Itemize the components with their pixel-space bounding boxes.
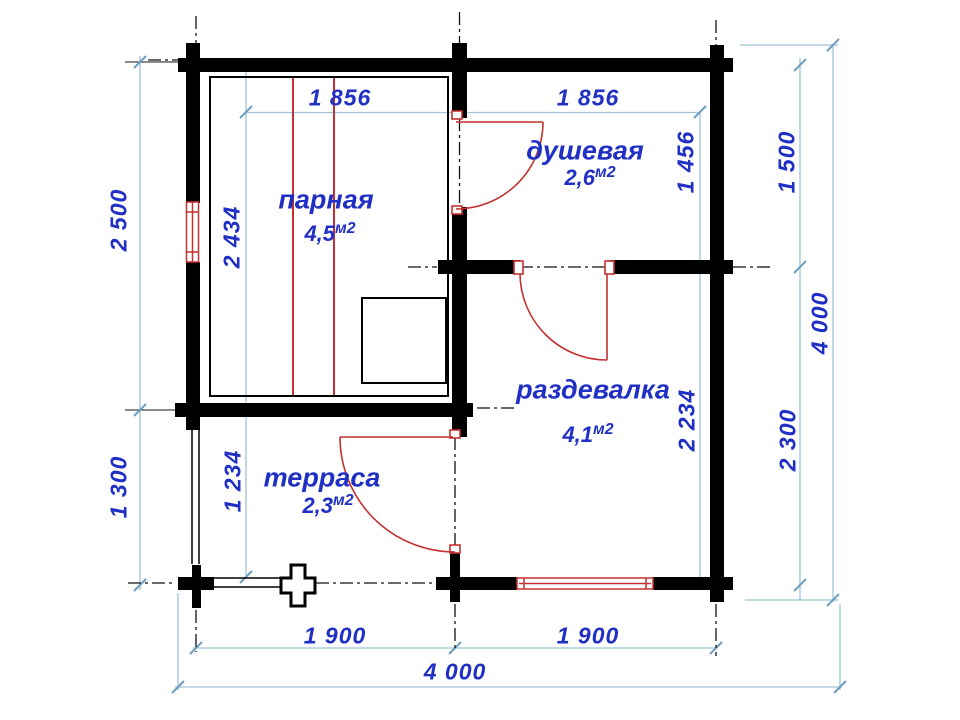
dim-bottom-left: 1 900 <box>304 625 367 648</box>
room-area-dushevaya: 2,6м2 <box>564 165 615 189</box>
center-wall-mid <box>452 207 467 437</box>
room-label-terrasa: терраса <box>264 465 381 492</box>
right-wall <box>710 45 724 602</box>
dim-right-lower: 2 300 <box>777 409 800 472</box>
dim-left-lower: 1 300 <box>108 456 131 519</box>
dim-parnaya-inner: 2 434 <box>221 206 244 269</box>
bottom-center-stub <box>450 552 460 602</box>
room-area-terrasa: 2,3м2 <box>302 493 353 517</box>
left-window <box>187 202 199 262</box>
dim-terrace-inner: 1 234 <box>222 450 245 513</box>
bottom-wall-right <box>653 577 733 590</box>
left-wall-upper <box>186 43 200 203</box>
dim-bottom-right: 1 900 <box>557 625 620 648</box>
terrace-corner-column-v <box>192 565 201 608</box>
stove <box>362 298 446 383</box>
extension-stubs <box>125 62 180 410</box>
dim-shower-inner: 1 456 <box>675 131 698 194</box>
room-area-razdevalka: 4,1м2 <box>562 422 613 446</box>
bottom-wall-left <box>436 577 517 590</box>
dim-top-right: 1 856 <box>557 87 620 110</box>
floor-plan: 1 856 1 856 2 500 1 300 2 434 1 234 1 45… <box>0 0 960 720</box>
dimension-ticks <box>134 39 846 693</box>
room-label-razdevalka: раздевалка <box>516 377 670 404</box>
dim-left-upper: 2 500 <box>108 189 131 252</box>
walls <box>175 43 733 608</box>
bottom-window <box>517 578 653 589</box>
dim-changing-inner: 2 234 <box>676 389 699 452</box>
room-label-parnaya: парная <box>278 187 373 214</box>
center-wall-upper <box>452 43 467 118</box>
plan-drawing <box>0 0 960 720</box>
changing-room-door <box>514 261 614 360</box>
room-area-parnaya: 4,5м2 <box>304 221 355 245</box>
dim-right-total: 4 000 <box>809 292 832 355</box>
dim-top-left: 1 856 <box>309 87 372 110</box>
cross-marker <box>281 565 315 606</box>
dim-right-upper: 1 500 <box>776 131 799 194</box>
parnaya-bottom-wall <box>175 403 473 417</box>
room-label-dushevaya: душевая <box>526 138 644 165</box>
dim-bottom-total: 4 000 <box>424 661 487 684</box>
middle-wall-left <box>438 260 520 274</box>
dimension-lines <box>140 45 842 690</box>
